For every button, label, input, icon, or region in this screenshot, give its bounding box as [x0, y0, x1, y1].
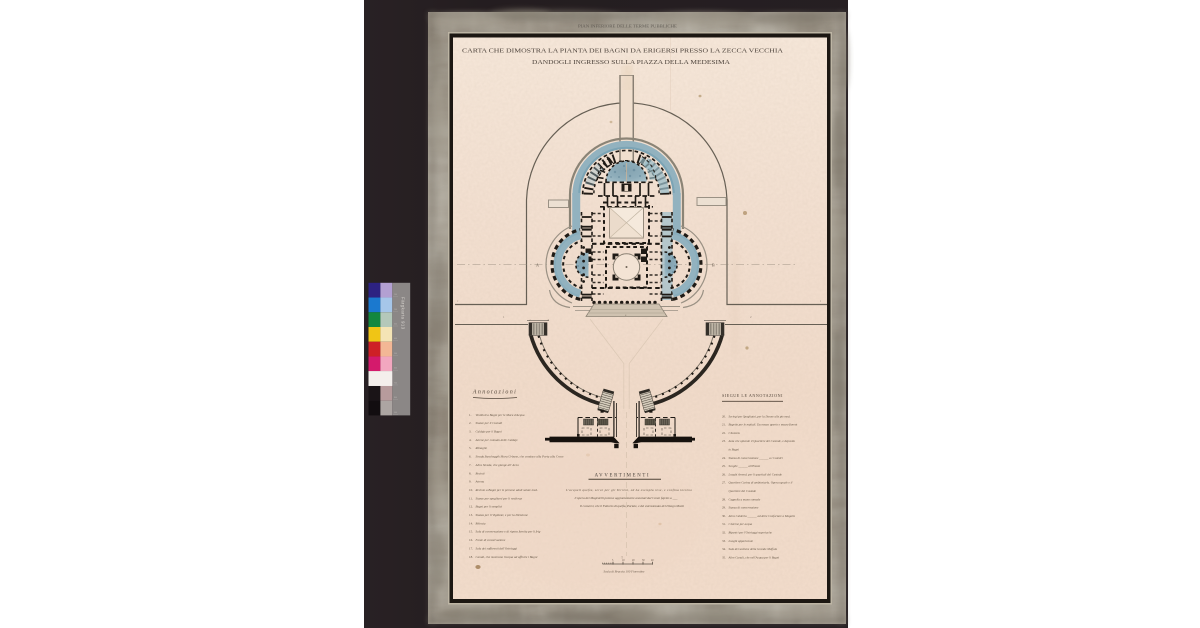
- svg-text:Cappella a mano comode: Cappella a mano comode: [729, 497, 761, 501]
- svg-text:100: 100: [394, 294, 397, 296]
- svg-text:24.: 24.: [722, 456, 726, 460]
- svg-text:30.: 30.: [722, 514, 726, 518]
- svg-text:3.: 3.: [469, 430, 472, 434]
- svg-text:700: 700: [394, 382, 397, 384]
- svg-text:Recinto a Bagni per le persone: Recinto a Bagni per le persone adult sal…: [475, 488, 538, 492]
- svg-text:7.: 7.: [469, 463, 472, 467]
- svg-text:Sala dei sofferenti dell'Ostri: Sala dei sofferenti dell'Ostriaggi: [476, 546, 518, 550]
- svg-text:A: A: [536, 262, 539, 267]
- svg-text:5.: 5.: [469, 446, 472, 450]
- svg-text:Cisterne per acqua: Cisterne per acqua: [729, 522, 753, 526]
- svg-text:16.: 16.: [469, 538, 473, 542]
- svg-text:20.: 20.: [722, 414, 726, 418]
- svg-text:DANDOGLI INGRESSO SULLA PIAZZA: DANDOGLI INGRESSO SULLA PIAZZA DELLA MED…: [532, 59, 730, 66]
- svg-text:17.: 17.: [469, 546, 473, 550]
- svg-text:Recinti: Recinti: [475, 471, 485, 475]
- svg-text:35.: 35.: [722, 555, 726, 559]
- svg-text:23.: 23.: [722, 439, 726, 443]
- svg-text:CARTA CHE DIMOSTRA LA PIANTA D: CARTA CHE DIMOSTRA LA PIANTA DEI BAGNI D…: [462, 48, 783, 55]
- svg-text:Quartiere Carina di ambientarl: Quartiere Carina di ambientarla. Opera e…: [729, 481, 793, 485]
- svg-text:27.: 27.: [722, 481, 726, 485]
- svg-text:in Bagni: in Bagni: [729, 448, 740, 452]
- svg-text:29.: 29.: [722, 506, 726, 510]
- svg-text:300: 300: [394, 324, 397, 326]
- svg-text:25.: 25.: [722, 464, 726, 468]
- svg-text:18.: 18.: [469, 555, 473, 559]
- svg-text:Stanza di conservazione ______: Stanza di conservazione ______ a i Cated…: [729, 456, 783, 460]
- svg-text:Quartiere del Custode: Quartiere del Custode: [729, 489, 757, 493]
- svg-text:Luoghi Arrend. per li quartial: Luoghi Arrend. per li quartiali del Cust…: [728, 472, 783, 476]
- svg-text:400: 400: [394, 338, 397, 340]
- svg-text:14.: 14.: [469, 521, 473, 525]
- svg-text:9.: 9.: [469, 480, 472, 484]
- svg-text:Atrena: Atrena: [475, 480, 485, 484]
- svg-text:Scala di Braccia 100 Fiorentin: Scala di Braccia 100 Fiorentine: [604, 570, 646, 574]
- svg-text:34.: 34.: [722, 547, 726, 551]
- svg-text:12.: 12.: [469, 505, 473, 509]
- svg-text:Luoghi appartenute: Luoghi appartenute: [728, 539, 754, 543]
- svg-text:Sala di conversazione e di rip: Sala di conversazione e di riposo fornit…: [476, 530, 541, 534]
- svg-text:Bagette per le matiali. Da mez: Bagette per le matiali. Da mezzo aperto …: [729, 423, 798, 427]
- svg-text:200: 200: [394, 309, 397, 311]
- svg-text:21.: 21.: [722, 423, 726, 427]
- svg-text:800: 800: [394, 397, 397, 399]
- svg-text:Färgkarta 913: Färgkarta 913: [401, 297, 406, 330]
- svg-text:Rimaglie: Rimaglie: [475, 446, 488, 450]
- svg-text:28.: 28.: [722, 497, 726, 501]
- svg-text:1.: 1.: [469, 413, 472, 417]
- svg-text:PIAN INFERIORE DELLE TERME PUB: PIAN INFERIORE DELLE TERME PUBBLICHE: [578, 25, 678, 29]
- svg-text:AVVERTIMENTI: AVVERTIMENTI: [595, 473, 651, 478]
- svg-text:900: 900: [394, 412, 397, 414]
- svg-text:Ripostri per l'Ostriaggi super: Ripostri per l'Ostriaggi superiache: [728, 531, 773, 535]
- svg-text:15.: 15.: [469, 530, 473, 534]
- svg-text:B: B: [712, 262, 715, 267]
- svg-text:11.: 11.: [469, 496, 473, 500]
- svg-text:Sala dei sostiene della Grande: Sala dei sostiene della Grande Muffola: [729, 547, 778, 551]
- svg-text:6.: 6.: [469, 455, 472, 459]
- svg-text:Altra Calderia ______ ad Altre: Altra Calderia ______ ad Altre Confortar…: [728, 514, 796, 518]
- svg-text:26.: 26.: [722, 472, 726, 476]
- svg-text:33.: 33.: [722, 539, 726, 543]
- svg-text:SIEGUE LE ANNOTAZIONI: SIEGUE LE ANNOTAZIONI: [722, 393, 783, 398]
- svg-text:Stanze per li Custodi: Stanze per li Custodi: [476, 421, 503, 425]
- svg-text:Ritirata: Ritirata: [475, 521, 486, 525]
- svg-text:Stanza di conservazione: Stanza di conservazione: [729, 506, 760, 510]
- svg-text:Annotazioni: Annotazioni: [472, 390, 517, 396]
- svg-text:Stanze per spogliarsi per li r: Stanze per spogliarsi per li restleray: [476, 496, 523, 500]
- svg-text:8.: 8.: [469, 471, 472, 475]
- svg-text:2.: 2.: [469, 421, 472, 425]
- svg-text:Bagni per li semplici: Bagni per li semplici: [476, 505, 503, 509]
- svg-text:Vestiboli a Bagni per le Mura: Vestiboli a Bagni per le Mura d'Acqua: [476, 413, 525, 417]
- svg-text:32.: 32.: [722, 531, 726, 535]
- svg-text:Cilatoria: Cilatoria: [729, 431, 741, 435]
- svg-text:10.: 10.: [469, 488, 473, 492]
- svg-text:Scoglie ______ all'Estate: Scoglie ______ all'Estate: [729, 464, 761, 468]
- svg-text:13.: 13.: [469, 513, 473, 517]
- svg-text:Caldaje per li Bagni: Caldaje per li Bagni: [476, 430, 502, 434]
- svg-text:500: 500: [394, 353, 397, 355]
- svg-text:31.: 31.: [722, 522, 726, 526]
- svg-text:22.: 22.: [722, 431, 726, 435]
- svg-text:600: 600: [394, 368, 397, 370]
- svg-text:L'opera dei Magistelli potesse: L'opera dei Magistelli potesse aggiuntam…: [574, 496, 678, 500]
- svg-text:4.: 4.: [469, 438, 472, 442]
- svg-text:Atrene per comodo delle Caldaj: Atrene per comodo delle Caldaje: [475, 438, 519, 442]
- svg-text:Fonte di conservazione: Fonte di conservazione: [475, 538, 506, 542]
